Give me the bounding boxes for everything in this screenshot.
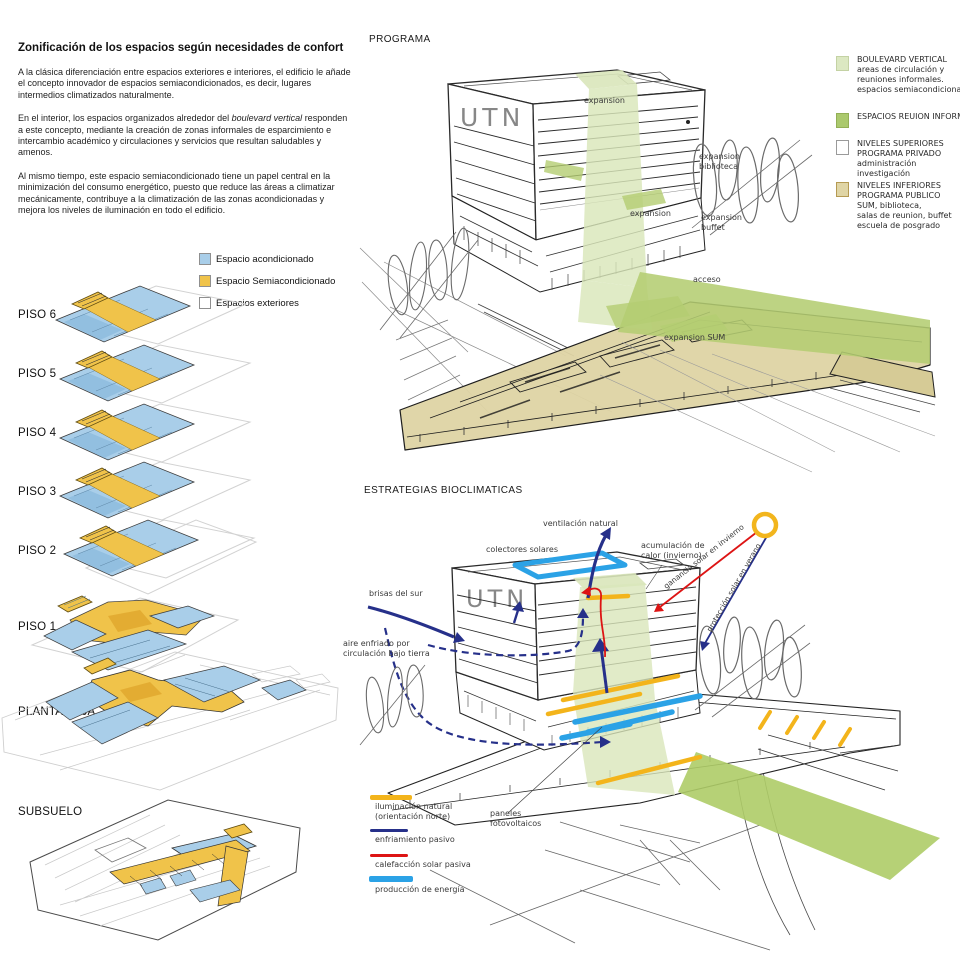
ann-expansion-biblioteca: expansion biblioteca	[699, 152, 740, 171]
window-dot	[686, 120, 690, 124]
boulevard-vertical-italic: boulevard vertical	[232, 113, 303, 123]
trees-left	[360, 665, 425, 745]
bioclim-legend: iluminación natural (orientación norte) …	[368, 790, 498, 900]
paragraph-2: En el interior, los espacios organizados…	[18, 113, 352, 159]
ann-expansion-sum: expansion SUM	[664, 333, 725, 343]
legend-item-inferiores: NIVELES INFERIORES PROGRAMA PUBLICO SUM,…	[836, 181, 960, 231]
legend-item-boulevard: BOULEVARD VERTICAL areas de circulación …	[836, 55, 960, 95]
page-title: Zonificación de los espacios según neces…	[18, 42, 352, 54]
ann-ventilacion: ventilación natural	[543, 519, 618, 529]
stacked-floor-plans	[0, 250, 360, 960]
plan-piso1	[32, 596, 238, 672]
legend-produccion: producción de energía	[375, 885, 465, 895]
plan-piso3	[60, 462, 250, 520]
plan-piso6	[56, 286, 246, 344]
blue-bar-icon	[369, 876, 413, 882]
lightgreen-swatch-icon	[836, 56, 849, 71]
green-swatch-icon	[836, 113, 849, 128]
plan-piso5	[60, 345, 250, 403]
legend-item-superiores: NIVELES SUPERIORES PROGRAMA PRIVADO admi…	[836, 139, 960, 179]
legend-iluminacion: iluminación natural (orientación norte)	[375, 802, 452, 821]
intro-text-block: Zonificación de los espacios según neces…	[18, 42, 352, 228]
legend-calefaccion: calefacción solar pasiva	[375, 860, 471, 870]
ann-expansion-mid: expansion	[630, 209, 671, 219]
paragraph-3: Al mismo tiempo, este espacio semiacondi…	[18, 171, 352, 217]
legend-enfriamiento: enfriamiento pasivo	[375, 835, 455, 845]
plan-subsuelo	[30, 800, 300, 940]
legend-item-reunion: ESPACIOS REUION INFORMAL	[836, 112, 960, 128]
ann-expansion-buffet: expansion buffet	[701, 213, 742, 232]
plan-piso2	[64, 520, 256, 594]
navy-bar-icon	[370, 829, 408, 832]
programa-legend: BOULEVARD VERTICAL areas de circulación …	[836, 53, 960, 243]
red-bar-icon	[370, 854, 408, 857]
ann-colectores: colectores solares	[486, 545, 558, 555]
yellow-bar-icon	[370, 795, 412, 800]
tower: UTN	[448, 70, 705, 292]
brisas-arrow	[368, 607, 454, 637]
ann-expansion-top: expansion	[584, 96, 625, 106]
ann-aire: aire enfriado por circulación bajo tierr…	[343, 639, 430, 658]
white-swatch-icon	[836, 140, 849, 155]
green-ramp-band	[678, 752, 940, 880]
tan-swatch-icon	[836, 182, 849, 197]
paragraph-1: A la clásica diferenciación entre espaci…	[18, 67, 352, 101]
roof-daylight-bar	[588, 596, 628, 598]
ann-acceso: acceso	[693, 275, 721, 285]
ann-brisas: brisas del sur	[369, 589, 423, 599]
presentation-board: Zonificación de los espacios según neces…	[0, 0, 960, 960]
utn-building-label: UTN	[460, 103, 524, 132]
plan-piso4	[60, 404, 250, 462]
plan-plantabaja	[2, 652, 338, 790]
